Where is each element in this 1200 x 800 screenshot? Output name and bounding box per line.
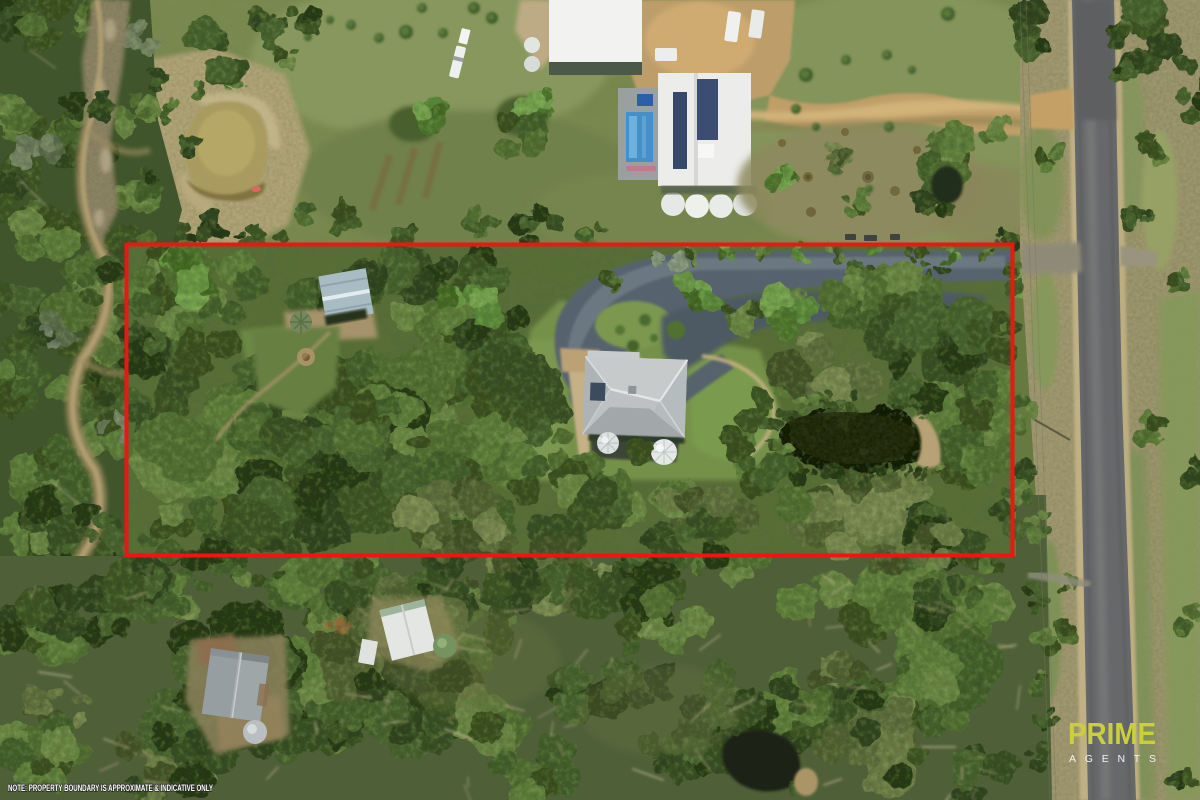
svg-text:NOTE: PROPERTY BOUNDARY IS APP: NOTE: PROPERTY BOUNDARY IS APPROXIMATE &… xyxy=(8,783,213,794)
svg-text:PRIME: PRIME xyxy=(1068,716,1156,751)
